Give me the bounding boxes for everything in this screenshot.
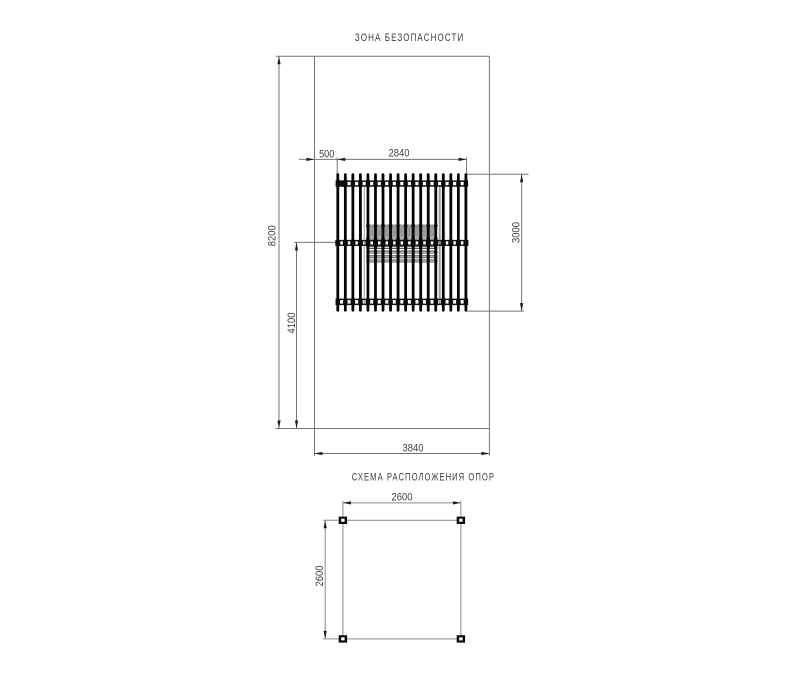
- svg-text:3000: 3000: [511, 222, 523, 243]
- svg-text:8200: 8200: [266, 225, 278, 246]
- svg-text:2600: 2600: [314, 566, 326, 587]
- svg-text:500: 500: [319, 148, 334, 160]
- svg-text:2600: 2600: [392, 492, 413, 504]
- svg-text:СХЕМА РАСПОЛОЖЕНИЯ ОПОР: СХЕМА РАСПОЛОЖЕНИЯ ОПОР: [352, 471, 495, 484]
- svg-text:3840: 3840: [403, 442, 424, 454]
- svg-text:4100: 4100: [286, 313, 298, 334]
- svg-text:ЗОНА БЕЗОПАСНОСТИ: ЗОНА БЕЗОПАСНОСТИ: [355, 32, 464, 45]
- svg-text:2840: 2840: [389, 148, 410, 160]
